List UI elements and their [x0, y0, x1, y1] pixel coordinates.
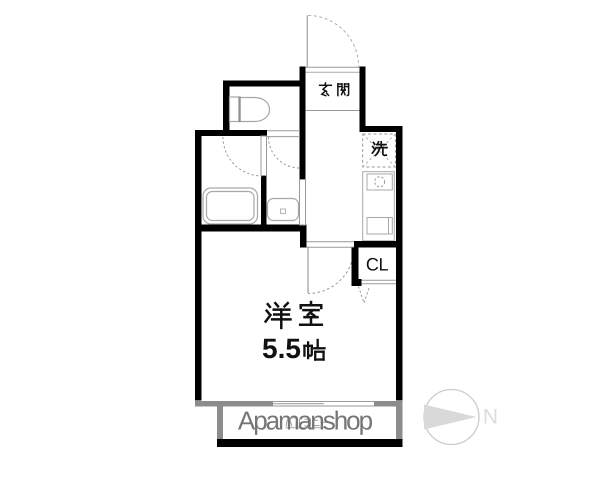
svg-text:5.5: 5.5 — [262, 333, 301, 364]
svg-text:CL: CL — [366, 255, 389, 275]
svg-text:Apamanshop: Apamanshop — [238, 406, 373, 436]
svg-text:N: N — [483, 406, 498, 429]
